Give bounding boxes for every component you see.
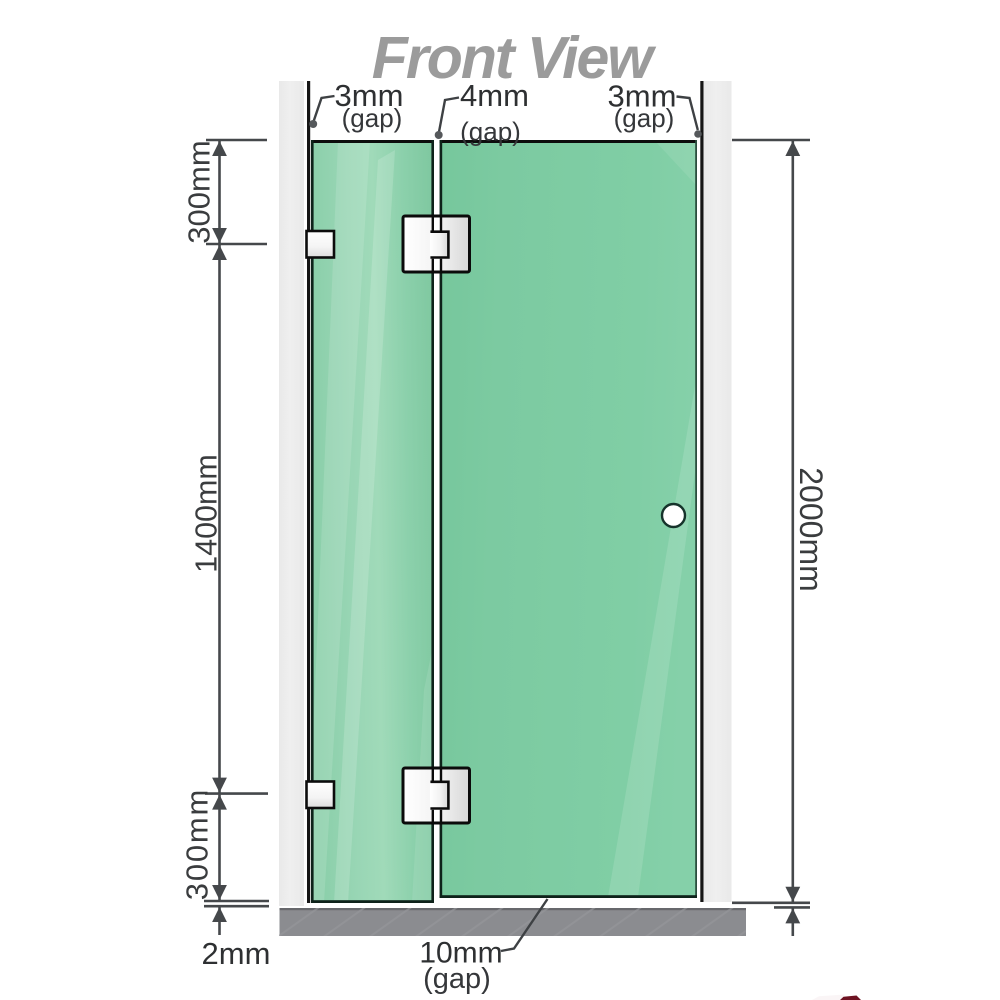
svg-text:2mm: 2mm xyxy=(202,936,271,971)
svg-text:300mm: 300mm xyxy=(182,140,217,243)
svg-text:300mm: 300mm xyxy=(180,788,215,900)
svg-text:(gap): (gap) xyxy=(460,117,521,147)
svg-text:(gap): (gap) xyxy=(423,963,491,995)
svg-text:(gap): (gap) xyxy=(614,103,675,133)
svg-text:1400mm: 1400mm xyxy=(190,454,224,573)
svg-text:2000mm: 2000mm xyxy=(793,467,829,592)
svg-text:(gap): (gap) xyxy=(342,103,403,133)
svg-text:4mm: 4mm xyxy=(460,78,529,113)
